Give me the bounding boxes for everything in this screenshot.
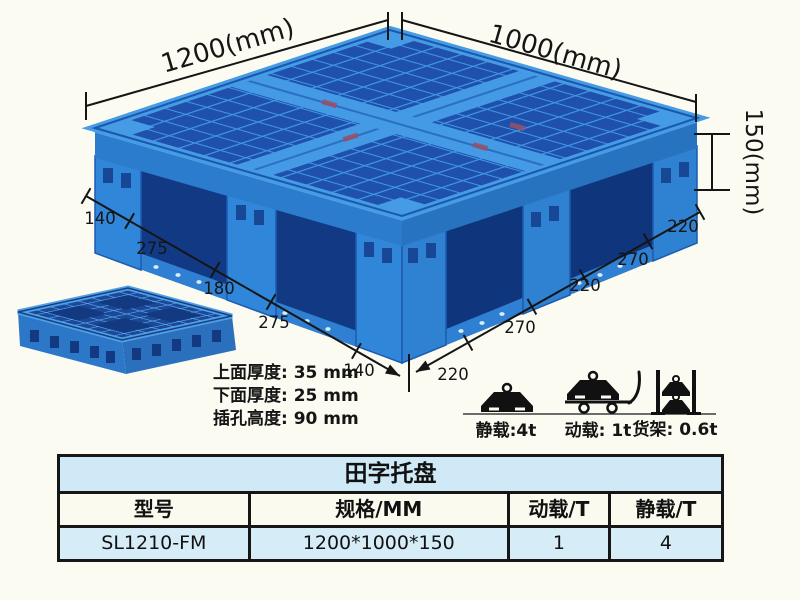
dim-right-3: 220 — [569, 276, 601, 295]
dim-height: 150(mm) — [694, 109, 766, 216]
dim-right-2: 270 — [504, 318, 536, 337]
spec-table: 田字托盘 型号 规格/MM 动载/T 静载/T SL1210-FM 1200*1… — [57, 454, 724, 562]
dim-right-4: 270 — [617, 250, 649, 269]
dim-left-2: 275 — [136, 239, 168, 258]
dim-left-1: 140 — [84, 209, 116, 228]
col-header-dynamic-load: 动载/T — [507, 494, 608, 525]
thickness-notes: 上面厚度: 35 mm 下面厚度: 25 mm 插孔高度: 90 mm — [213, 362, 359, 429]
note-bottom-thickness: 下面厚度: 25 mm — [213, 385, 359, 406]
table-title: 田字托盘 — [60, 457, 721, 491]
cell-spec: 1200*1000*150 — [248, 528, 507, 559]
rack-load-label: 货架: 0.6t — [633, 419, 718, 440]
static-load-icon — [481, 384, 533, 412]
dim-right-5: 220 — [667, 217, 699, 236]
col-header-static-load: 静载/T — [608, 494, 721, 525]
dim-left-4: 275 — [258, 313, 290, 332]
dynamic-load-icon — [565, 372, 639, 413]
product-sheet: 1200(mm) 1000(mm) 150(mm) 1 — [0, 0, 800, 600]
cell-dynamic-load: 1 — [507, 528, 608, 559]
dim-height-label: 150(mm) — [740, 109, 766, 216]
table-header-row: 型号 规格/MM 动载/T 静载/T — [60, 491, 721, 525]
note-top-thickness: 上面厚度: 35 mm — [213, 362, 359, 383]
dim-right-1: 220 — [437, 365, 469, 384]
inset-pallet-illustration — [18, 288, 236, 374]
table-row: SL1210-FM 1200*1000*150 1 4 — [60, 525, 721, 559]
static-load-label: 静载:4t — [476, 420, 537, 441]
cell-model: SL1210-FM — [60, 528, 248, 559]
load-rating-icons: 静载:4t 动载: 1t 货架: 0.6t — [463, 370, 717, 441]
dynamic-load-label: 动载: 1t — [565, 420, 632, 441]
dim-left-3: 180 — [203, 279, 235, 298]
col-header-spec: 规格/MM — [248, 494, 507, 525]
rack-load-icon — [651, 370, 701, 415]
note-fork-height: 插孔高度: 90 mm — [213, 408, 359, 429]
cell-static-load: 4 — [608, 528, 721, 559]
col-header-model: 型号 — [60, 494, 248, 525]
